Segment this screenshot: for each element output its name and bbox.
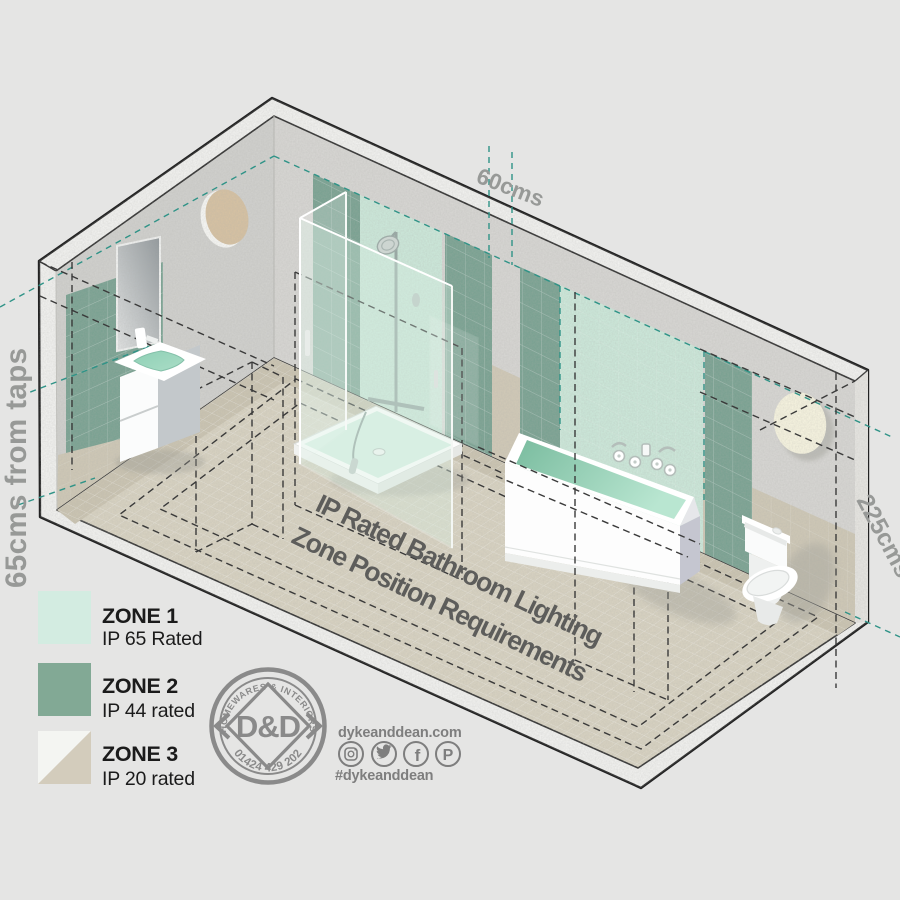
svg-text:f: f [415, 746, 421, 765]
svg-text:IP 44 rated: IP 44 rated [102, 700, 195, 722]
svg-text:P: P [443, 747, 454, 764]
svg-text:ZONE 2: ZONE 2 [102, 674, 178, 698]
svg-text:65cms from taps: 65cms from taps [0, 348, 33, 588]
svg-text:#dykeanddean: #dykeanddean [335, 768, 433, 784]
svg-text:IP 20 rated: IP 20 rated [102, 768, 195, 790]
svg-text:ZONE 3: ZONE 3 [102, 742, 178, 766]
svg-text:IP 65 Rated: IP 65 Rated [102, 628, 202, 650]
svg-text:D&D: D&D [236, 709, 301, 744]
svg-text:ZONE 1: ZONE 1 [102, 604, 178, 628]
svg-text:dykeanddean.com: dykeanddean.com [338, 725, 462, 741]
